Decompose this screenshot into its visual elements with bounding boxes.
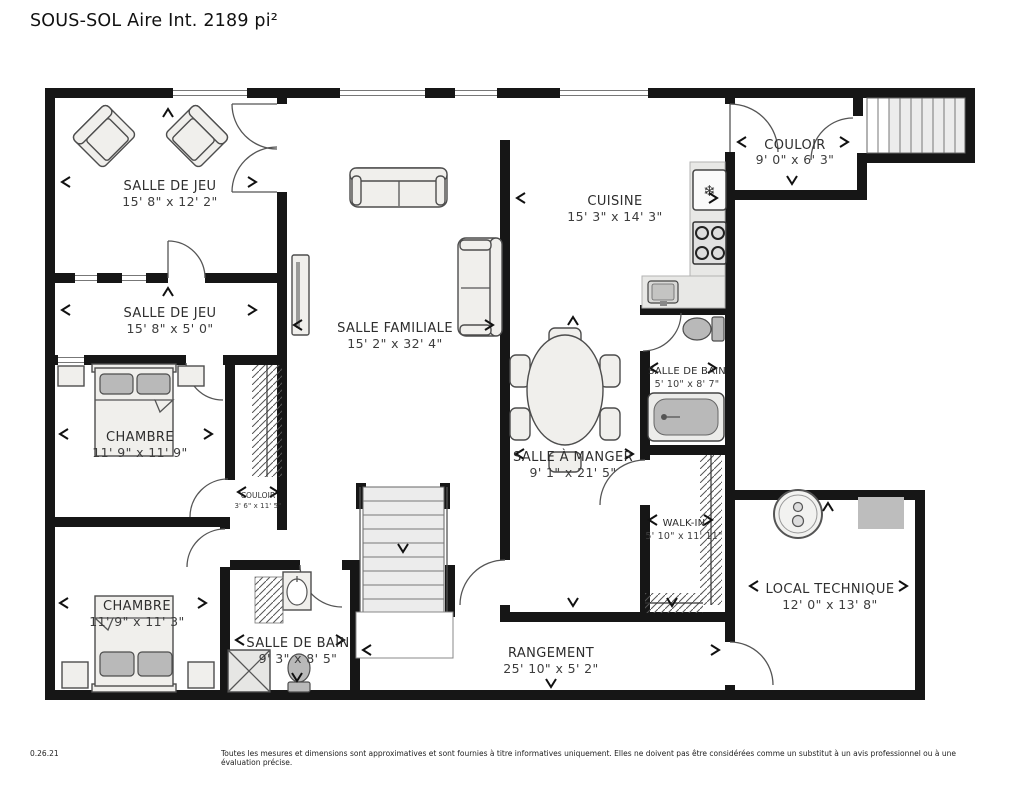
closet-rod-hatch bbox=[252, 365, 282, 477]
floorplan-svg: ❄ bbox=[0, 0, 1024, 791]
room-label-rangement: RANGEMENT 25' 10" x 5' 2" bbox=[503, 646, 598, 676]
room-label-salle-de-bain-1: SALLE DE BAIN 5' 10" x 8' 7" bbox=[648, 366, 726, 390]
nightstand bbox=[178, 366, 204, 386]
svg-text:SALLE DE BAIN: SALLE DE BAIN bbox=[648, 366, 726, 377]
svg-text:15' 8" x 5' 0": 15' 8" x 5' 0" bbox=[126, 321, 213, 336]
door-arc bbox=[460, 560, 505, 605]
window bbox=[455, 88, 497, 98]
double-door-arc bbox=[232, 104, 277, 192]
svg-text:11' 9" x 11' 9": 11' 9" x 11' 9" bbox=[92, 445, 187, 460]
window bbox=[340, 88, 425, 98]
svg-text:15' 3" x 14' 3": 15' 3" x 14' 3" bbox=[567, 209, 662, 224]
svg-text:SALLE DE BAIN: SALLE DE BAIN bbox=[246, 636, 349, 651]
svg-text:SALLE FAMILIALE: SALLE FAMILIALE bbox=[337, 321, 453, 336]
staircase-exit bbox=[867, 98, 965, 153]
room-label-salle-familiale: SALLE FAMILIALE 15' 2" x 32' 4" bbox=[337, 321, 453, 351]
pillow bbox=[100, 374, 133, 394]
nightstand bbox=[58, 366, 84, 386]
dining-table bbox=[527, 335, 603, 445]
armchair bbox=[71, 103, 136, 168]
version-label: 0.26.21 bbox=[30, 749, 59, 758]
sofa bbox=[350, 168, 447, 207]
svg-text:12' 0" x 13' 8": 12' 0" x 13' 8" bbox=[782, 597, 877, 612]
svg-text:9' 1" x 21' 5": 9' 1" x 21' 5" bbox=[529, 465, 616, 480]
tv-console bbox=[292, 255, 309, 335]
window bbox=[560, 88, 648, 98]
nightstand bbox=[62, 662, 88, 688]
armchair bbox=[164, 103, 229, 168]
window bbox=[58, 355, 84, 365]
pillow bbox=[137, 374, 170, 394]
staircase-main bbox=[356, 487, 453, 658]
svg-text:5' 10" x 8' 7": 5' 10" x 8' 7" bbox=[655, 379, 720, 390]
fridge: ❄ bbox=[693, 170, 726, 210]
svg-text:25' 10" x 5' 2": 25' 10" x 5' 2" bbox=[503, 661, 598, 676]
room-label-couloir-2: COULOIR 3' 6" x 11' 5" bbox=[235, 491, 282, 510]
disclaimer-text: Toutes les mesures et dimensions sont ap… bbox=[221, 749, 993, 767]
svg-text:15' 2" x 32' 4": 15' 2" x 32' 4" bbox=[347, 336, 442, 351]
svg-text:3' 6" x 11' 5": 3' 6" x 11' 5" bbox=[235, 502, 282, 510]
floorplan-page: SOUS-SOL Aire Int. 2189 pi² bbox=[0, 0, 1024, 791]
loveseat bbox=[458, 238, 502, 336]
room-label-local-technique: LOCAL TECHNIQUE 12' 0" x 13' 8" bbox=[766, 582, 895, 612]
svg-text:COULOIR: COULOIR bbox=[241, 491, 276, 500]
understair-storage bbox=[356, 612, 453, 658]
room-label-chambre-2: CHAMBRE 11' 9" x 11' 3" bbox=[89, 599, 184, 629]
room-label-salle-de-bain-2: SALLE DE BAIN 9' 3" x 8' 5" bbox=[246, 636, 349, 666]
toilet bbox=[683, 317, 724, 341]
svg-text:CHAMBRE: CHAMBRE bbox=[106, 430, 174, 445]
water-heater bbox=[774, 490, 822, 538]
svg-text:9' 3" x 8' 5": 9' 3" x 8' 5" bbox=[259, 651, 338, 666]
pillow bbox=[100, 652, 134, 676]
svg-text:9' 0" x 6' 3": 9' 0" x 6' 3" bbox=[756, 152, 835, 167]
svg-text:5' 10" x 11' 11": 5' 10" x 11' 11" bbox=[645, 531, 722, 542]
room-label-chambre-1: CHAMBRE 11' 9" x 11' 9" bbox=[92, 430, 187, 460]
svg-text:RANGEMENT: RANGEMENT bbox=[508, 646, 594, 661]
svg-text:SALLE DE JEU: SALLE DE JEU bbox=[124, 179, 217, 194]
door-arc bbox=[190, 479, 228, 517]
svg-text:SALLE À MANGER: SALLE À MANGER bbox=[513, 449, 633, 465]
nightstand bbox=[188, 662, 214, 688]
svg-text:SALLE DE JEU: SALLE DE JEU bbox=[124, 306, 217, 321]
window bbox=[75, 273, 97, 283]
fridge-snowflake-icon: ❄ bbox=[703, 182, 716, 200]
stove bbox=[693, 222, 726, 264]
door-arc bbox=[643, 313, 681, 351]
svg-text:11' 9" x 11' 3": 11' 9" x 11' 3" bbox=[89, 614, 184, 629]
svg-text:CUISINE: CUISINE bbox=[587, 194, 642, 209]
room-label-cuisine: CUISINE 15' 3" x 14' 3" bbox=[567, 194, 662, 224]
window bbox=[173, 88, 247, 98]
door-arc bbox=[730, 642, 773, 685]
svg-text:15' 8" x 12' 2": 15' 8" x 12' 2" bbox=[122, 194, 217, 209]
svg-text:WALK-IN: WALK-IN bbox=[663, 518, 706, 529]
vanity-sink bbox=[283, 572, 311, 610]
room-label-salle-de-jeu-2: SALLE DE JEU 15' 8" x 5' 0" bbox=[124, 306, 217, 336]
door-arc bbox=[168, 241, 205, 278]
svg-text:CHAMBRE: CHAMBRE bbox=[103, 599, 171, 614]
window bbox=[122, 273, 146, 283]
room-label-salle-de-jeu-1: SALLE DE JEU 15' 8" x 12' 2" bbox=[122, 179, 217, 209]
pillow bbox=[138, 652, 172, 676]
kitchen-sink bbox=[648, 281, 678, 306]
svg-text:COULOIR: COULOIR bbox=[764, 138, 826, 153]
closet-rod-hatch bbox=[255, 577, 283, 623]
door-arc bbox=[187, 529, 225, 567]
room-label-couloir-1: COULOIR 9' 0" x 6' 3" bbox=[756, 138, 835, 167]
bathtub bbox=[648, 393, 724, 441]
room-label-salle-a-manger: SALLE À MANGER 9' 1" x 21' 5" bbox=[513, 449, 633, 480]
svg-text:LOCAL TECHNIQUE: LOCAL TECHNIQUE bbox=[766, 582, 895, 597]
equipment-unit bbox=[858, 497, 904, 529]
